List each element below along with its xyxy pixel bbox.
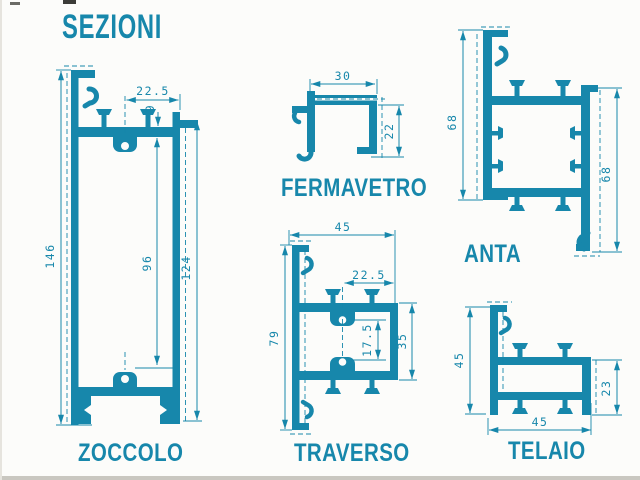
anta-dim-68-left: 68 bbox=[445, 114, 459, 131]
scan-artifact bbox=[63, 0, 76, 4]
traverso-drawing: 45 22.5 79 17.5 35 bbox=[267, 220, 417, 434]
traverso-dim-22-5: 22.5 bbox=[352, 268, 386, 282]
profiles-diagram: 146 22.5 9 96 124 bbox=[0, 0, 640, 480]
sections-technical-drawing: SEZIONI ZOCCOLO FERMAVETRO ANTA TRAVERSO… bbox=[0, 0, 640, 480]
traverso-dim-35: 35 bbox=[395, 333, 409, 350]
zoccolo-drawing: 146 22.5 9 96 124 bbox=[43, 66, 202, 425]
traverso-dim-45: 45 bbox=[335, 220, 352, 234]
telaio-dim-45-left: 45 bbox=[452, 352, 466, 369]
scan-artifact bbox=[10, 2, 20, 5]
anta-dim-68-right: 68 bbox=[599, 166, 613, 183]
zoccolo-dim-96: 96 bbox=[140, 255, 154, 272]
scan-artifact bbox=[0, 0, 2, 480]
zoccolo-dim-146: 146 bbox=[43, 243, 57, 268]
scan-artifact bbox=[0, 476, 640, 480]
fermavetro-drawing: 30 22 bbox=[292, 69, 404, 159]
fermavetro-dim-22: 22 bbox=[382, 123, 396, 140]
fermavetro-dim-30: 30 bbox=[335, 69, 352, 83]
zoccolo-dim-9: 9 bbox=[143, 104, 157, 112]
traverso-dim-79: 79 bbox=[267, 330, 281, 347]
anta-drawing: 68 68 bbox=[445, 27, 622, 256]
telaio-dim-23: 23 bbox=[599, 380, 613, 397]
zoccolo-dim-22-5: 22.5 bbox=[136, 84, 170, 98]
telaio-drawing: 45 23 45 bbox=[452, 302, 622, 435]
telaio-dim-45-bottom: 45 bbox=[532, 415, 549, 429]
zoccolo-dim-124: 124 bbox=[179, 255, 193, 280]
traverso-dim-17-5: 17.5 bbox=[360, 323, 374, 357]
